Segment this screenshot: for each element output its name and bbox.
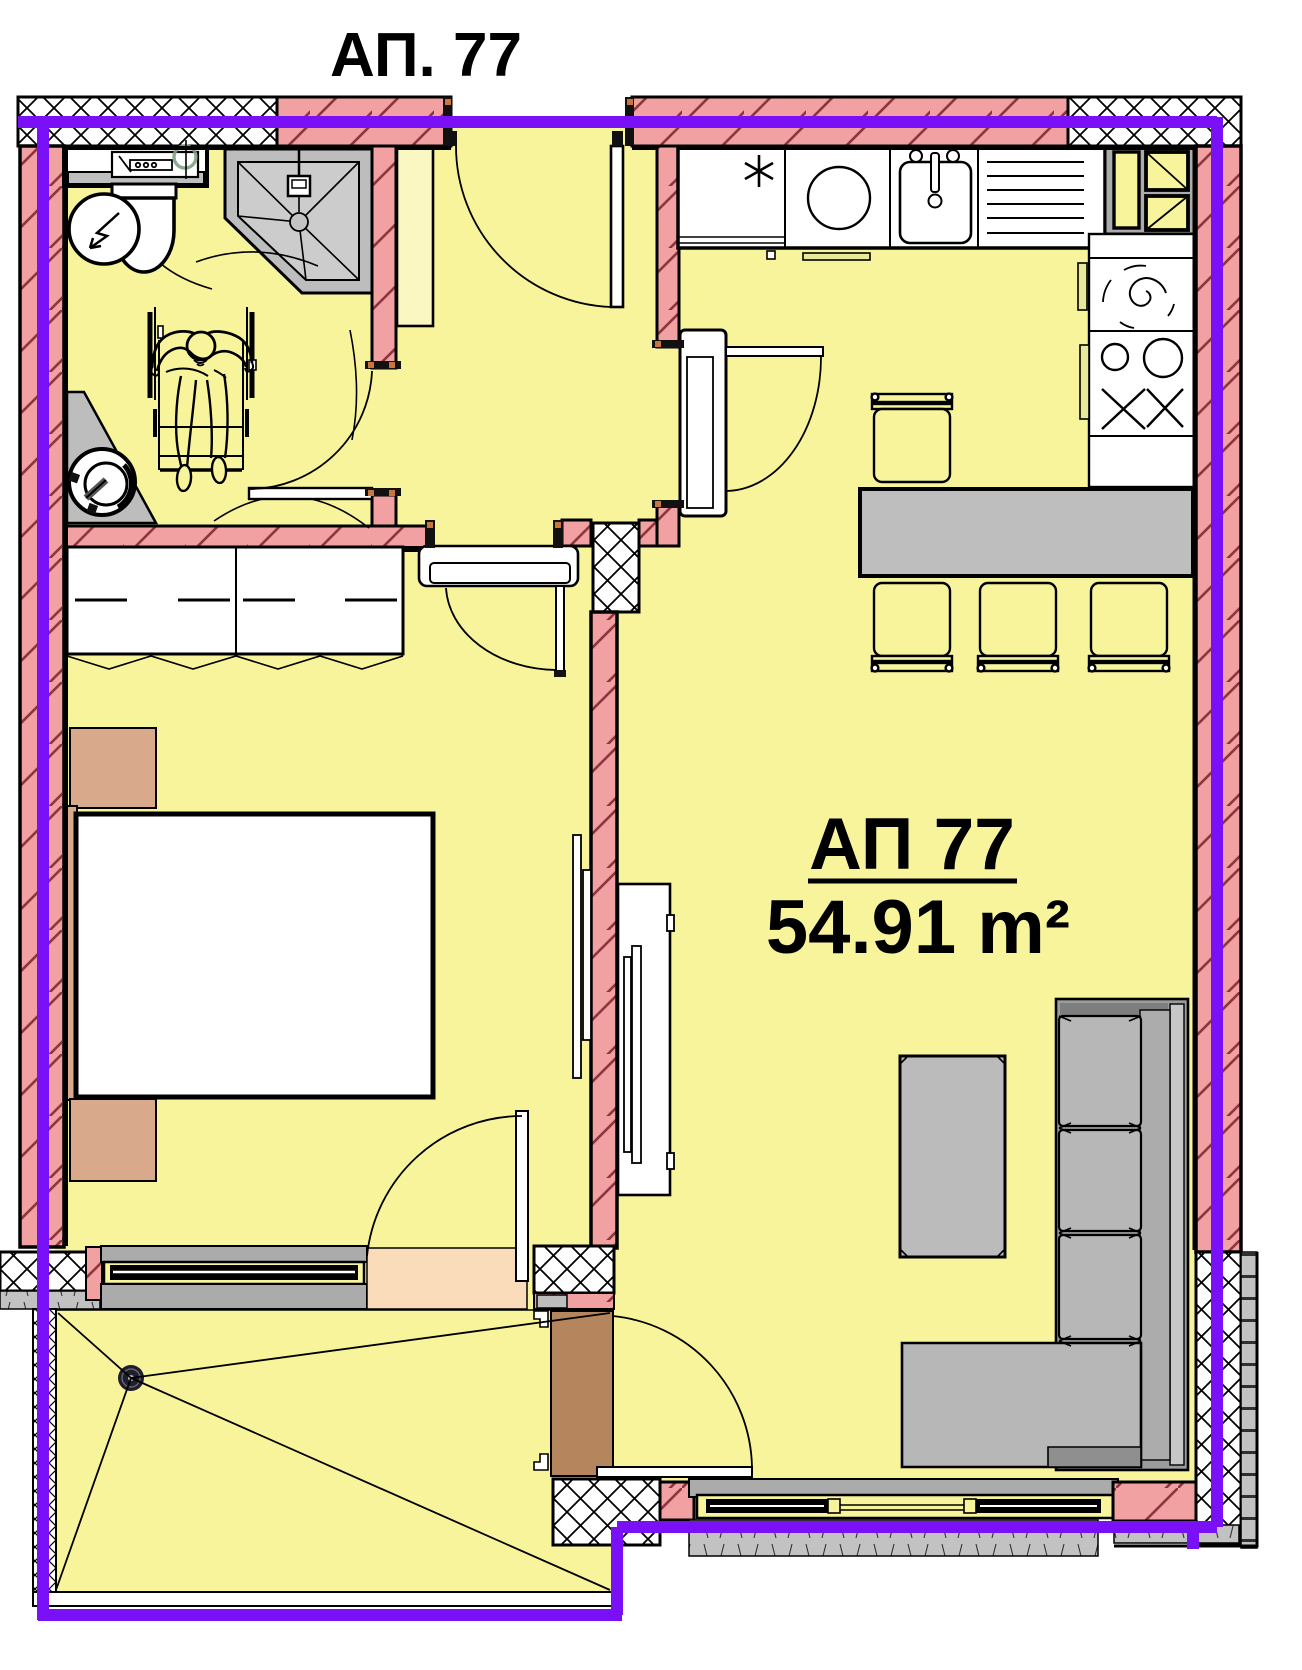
svg-text:АП. 77: АП. 77 — [330, 21, 522, 90]
svg-text:54.91 m²: 54.91 m² — [766, 885, 1070, 970]
svg-text:АП 77: АП 77 — [809, 804, 1015, 885]
